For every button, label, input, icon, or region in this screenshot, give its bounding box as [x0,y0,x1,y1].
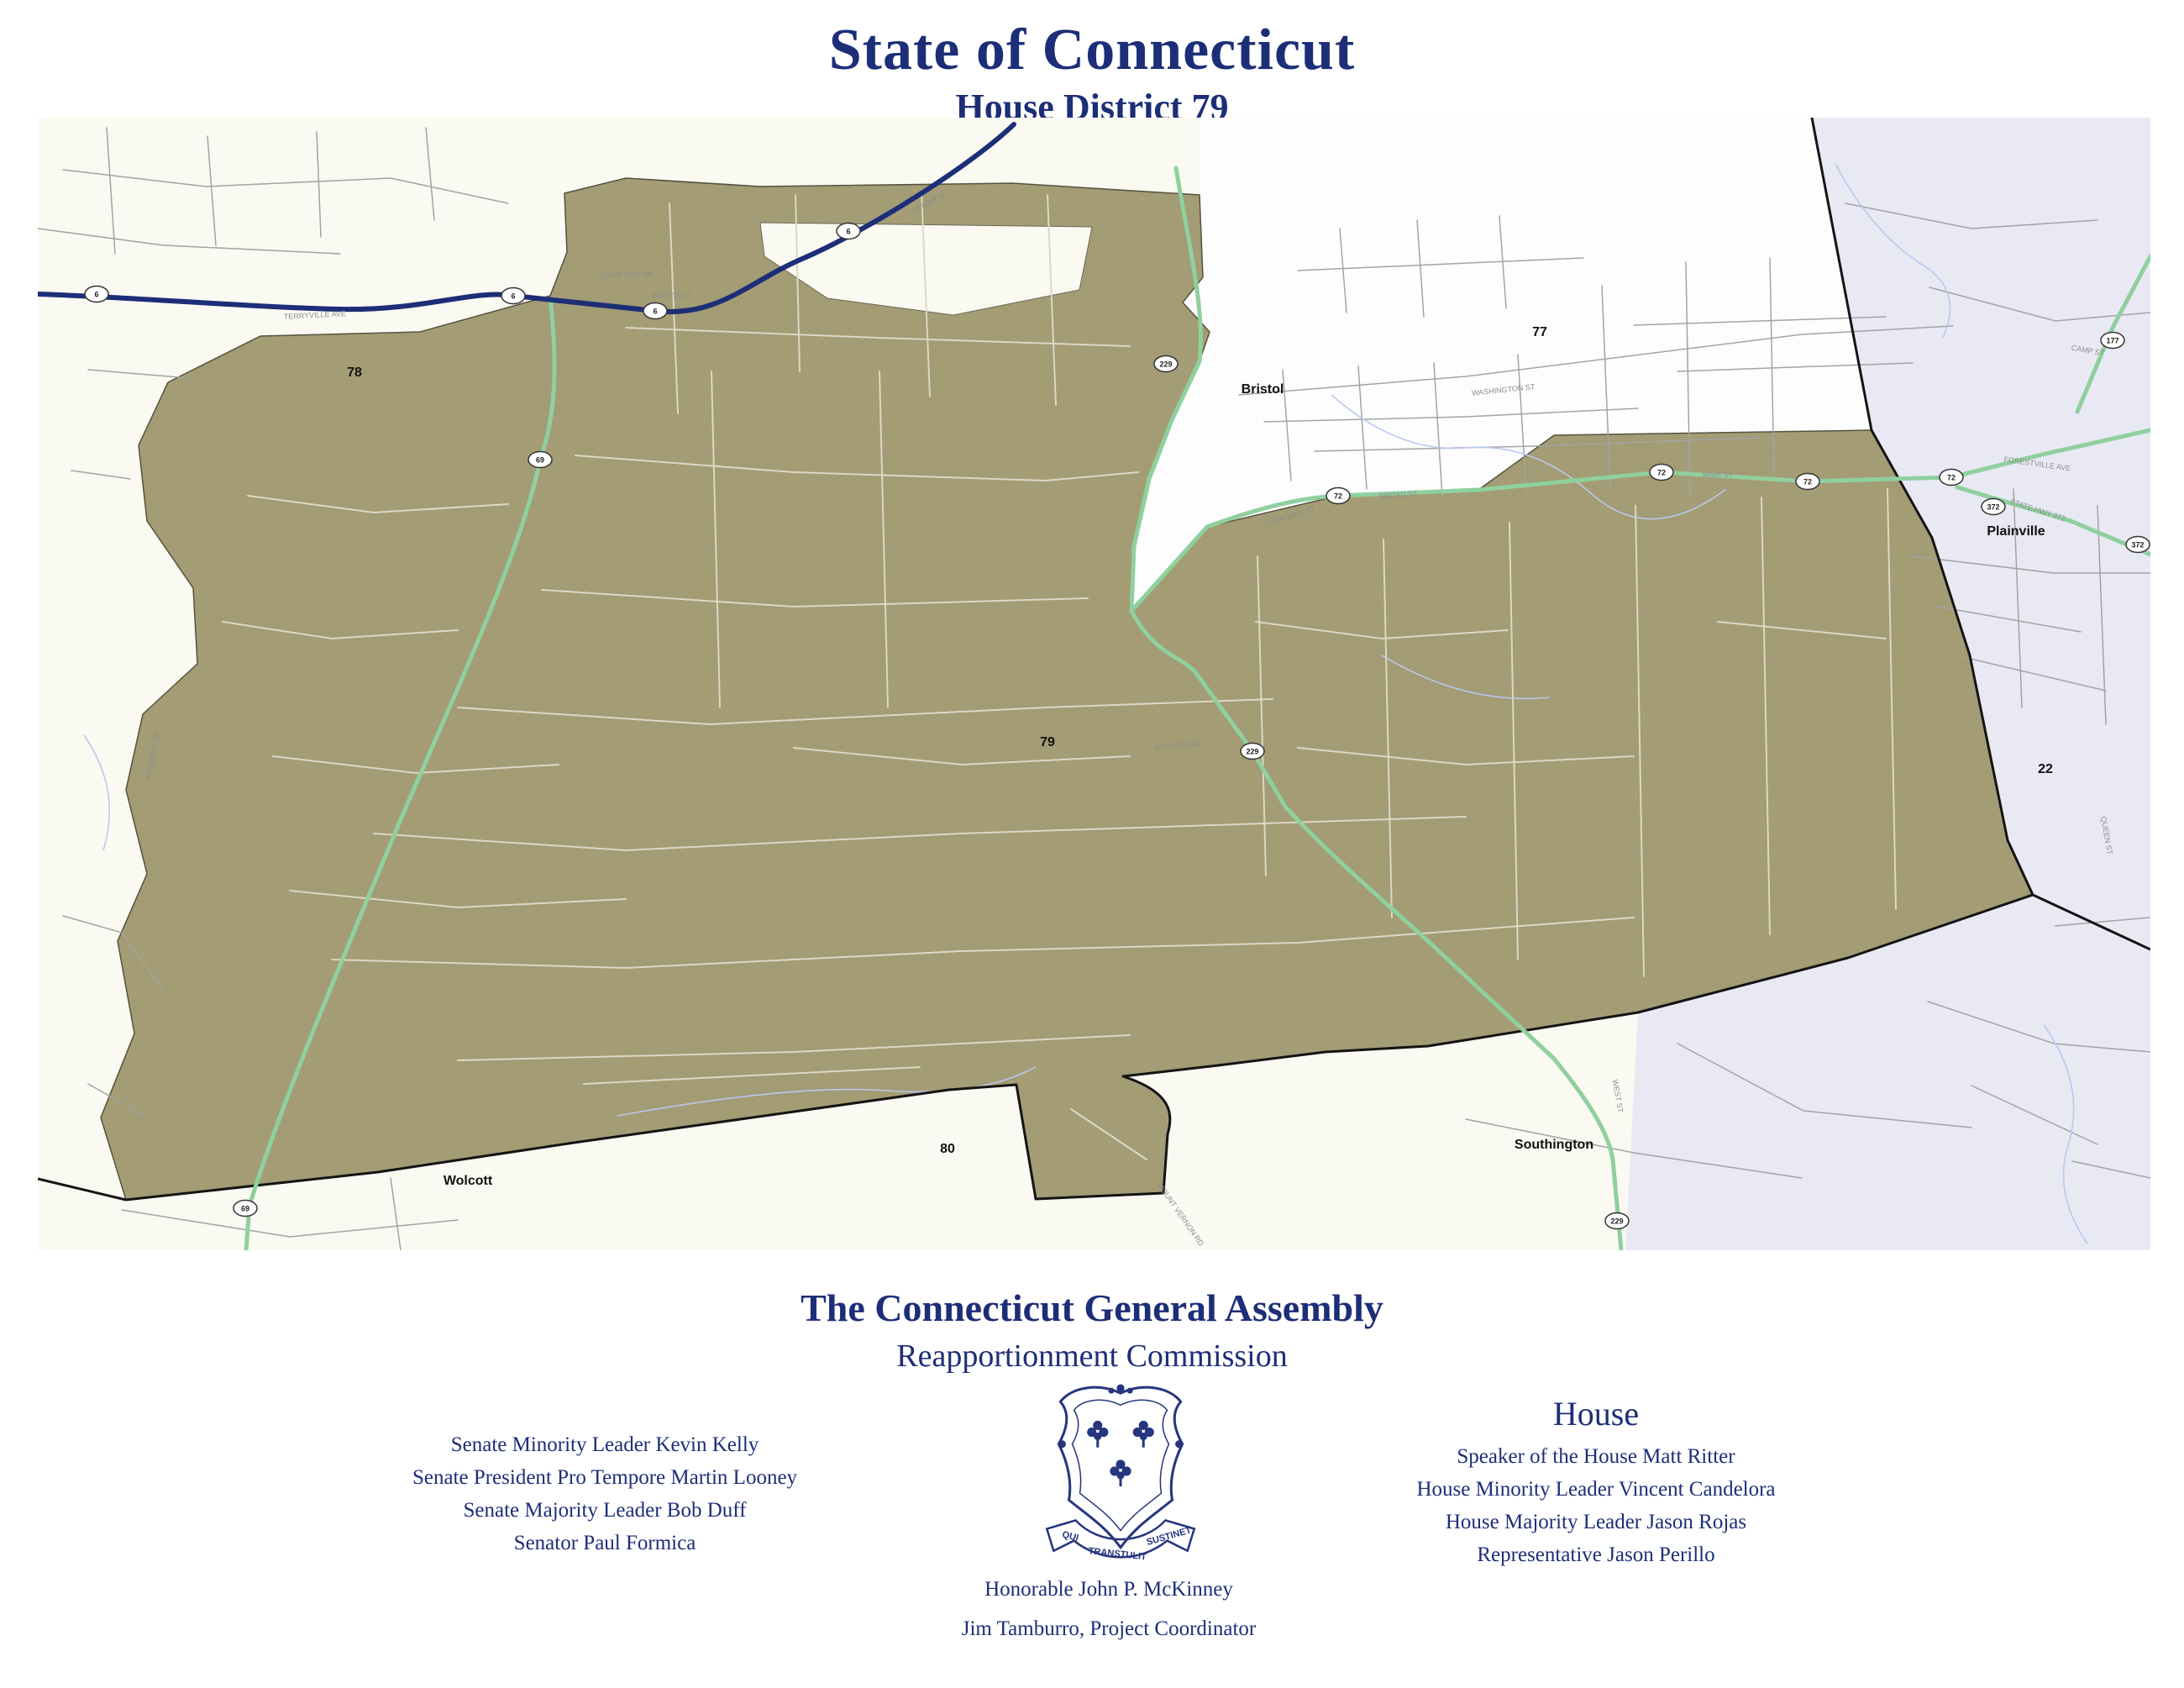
map-container: BristolPlainvilleWolcottSouthington78777… [38,118,2150,1250]
seal-grapevines [1058,1385,1182,1486]
route-shield-number: 69 [536,456,544,465]
senate-leaders-list: Senate Minority Leader Kevin KellySenate… [252,1428,958,1559]
route-shield-number: 72 [1657,469,1666,477]
town-label: Wolcott [444,1174,493,1188]
honorable-line: Honorable John P. McKinney [823,1578,1394,1601]
district-number-label: 78 [347,365,362,380]
page-header: State of Connecticut House District 79 [0,15,2184,129]
house-leader-line: House Minority Leader Vincent Candelora [1277,1473,1915,1506]
route-shield-number: 177 [2106,337,2118,345]
district-number-label: 80 [940,1142,955,1156]
town-label: Plainville [1987,524,2045,539]
route-shield-number: 372 [1987,503,1999,512]
district-number-label: 22 [2038,762,2053,776]
page-title: State of Connecticut [0,15,2184,86]
route-shield-number: 69 [241,1205,249,1213]
house-leader-line: House Majority Leader Jason Rojas [1277,1506,1915,1538]
route-shield-number: 6 [846,228,850,236]
route-shield-number: 72 [1334,492,1342,501]
route-shield-number: 229 [1246,748,1258,756]
seal-motto-right: SUSTINET [1146,1525,1193,1548]
commission-title: Reapportionment Commission [0,1338,2184,1375]
senate-leader-line: Senator Paul Formica [252,1527,958,1559]
route-shield-number: 372 [2131,541,2144,550]
route-shield-number: 229 [1610,1217,1623,1226]
house-heading: House [1277,1395,1915,1433]
house-leader-line: Speaker of the House Matt Ritter [1277,1440,1915,1473]
connecticut-seal: QUI TRANSTULIT SUSTINET [1032,1380,1210,1575]
route-shield-number: 6 [653,308,657,316]
house-leaders-list: Speaker of the House Matt RitterHouse Mi… [1277,1440,1915,1571]
house-leader-line: Representative Jason Perillo [1277,1538,1915,1571]
route-shield-number: 6 [94,291,98,299]
senate-leader-line: Senate Majority Leader Bob Duff [252,1494,958,1527]
route-shield-number: 72 [1803,478,1812,486]
route-shield-number: 229 [1159,360,1172,369]
route-shield-number: 6 [511,292,515,301]
street-label: NORTH ST [653,291,692,301]
town-label: Bristol [1242,382,1284,397]
route-shield-number: 72 [1947,474,1956,482]
district-map[interactable]: BristolPlainvilleWolcottSouthington78777… [38,118,2150,1250]
district-number-label: 77 [1532,325,1547,339]
district-number-label: 79 [1040,735,1055,749]
coordinator-line: Jim Tamburro, Project Coordinator [823,1617,1394,1641]
house-leaders-block: House Speaker of the House Matt RitterHo… [1277,1395,1915,1571]
senate-leader-line: Senate Minority Leader Kevin Kelly [252,1428,958,1461]
seal-motto-center: TRANSTULIT [1088,1546,1147,1562]
assembly-title: The Connecticut General Assembly [0,1286,2184,1330]
town-label: Southington [1515,1138,1593,1152]
district-map-page: { "header": { "title": "State of Connect… [0,0,2184,1688]
street-label: MAIN ST [1703,471,1734,479]
seal-motto-left: QUI [1061,1530,1079,1543]
senate-leader-line: Senate President Pro Tempore Martin Loon… [252,1461,958,1494]
